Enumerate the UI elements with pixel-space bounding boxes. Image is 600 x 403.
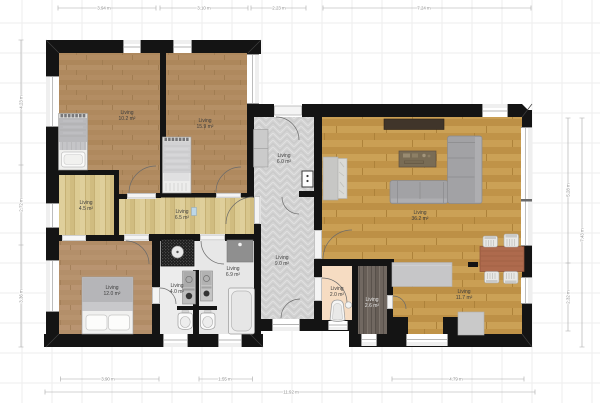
- svg-text:1.55 m: 1.55 m: [218, 377, 232, 382]
- svg-text:4.23 m: 4.23 m: [19, 95, 24, 109]
- svg-text:4.5 m²: 4.5 m²: [79, 206, 94, 212]
- svg-text:11.7 m²: 11.7 m²: [456, 295, 473, 301]
- svg-text:2.0 m²: 2.0 m²: [330, 292, 345, 298]
- svg-text:6.5 m²: 6.5 m²: [175, 215, 190, 221]
- svg-text:3.90 m: 3.90 m: [101, 377, 115, 382]
- svg-text:2.32 m: 2.32 m: [566, 290, 571, 304]
- svg-text:7.24 m: 7.24 m: [417, 6, 431, 11]
- svg-text:15.9 m²: 15.9 m²: [197, 124, 214, 130]
- svg-text:10.2 m²: 10.2 m²: [119, 116, 136, 122]
- svg-text:36.2 m²: 36.2 m²: [412, 216, 429, 222]
- svg-text:12.0 m²: 12.0 m²: [104, 291, 121, 297]
- svg-text:5.28 m: 5.28 m: [566, 183, 571, 197]
- svg-text:2.23 m: 2.23 m: [272, 6, 286, 11]
- svg-text:6.9 m²: 6.9 m²: [226, 272, 241, 278]
- svg-text:6.0 m²: 6.0 m²: [277, 159, 292, 165]
- svg-text:3.94 m: 3.94 m: [97, 6, 111, 11]
- svg-text:7.43 m: 7.43 m: [580, 228, 585, 242]
- svg-text:3.36 m: 3.36 m: [19, 289, 24, 303]
- svg-text:2.6 m²: 2.6 m²: [365, 303, 380, 309]
- svg-text:9.0 m²: 9.0 m²: [275, 261, 290, 267]
- svg-text:11.92 m: 11.92 m: [283, 390, 299, 395]
- svg-text:4.0 m²: 4.0 m²: [170, 289, 185, 295]
- svg-text:2.72 m: 2.72 m: [19, 198, 24, 212]
- svg-text:3.10 m: 3.10 m: [197, 6, 211, 11]
- svg-text:4.79 m: 4.79 m: [449, 377, 463, 382]
